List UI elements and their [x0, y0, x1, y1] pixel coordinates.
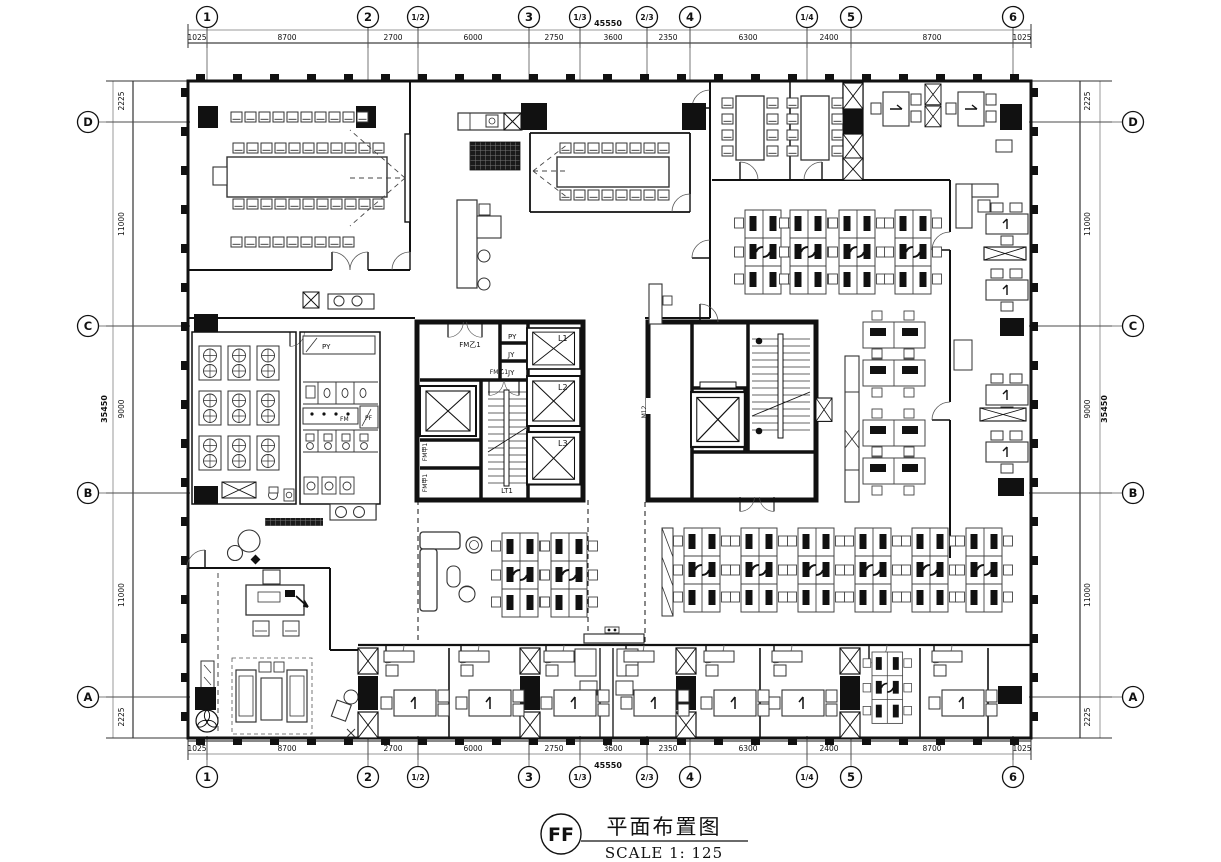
grid-dimensions-left: 2225 11000 9000 11000 2225 35450 — [100, 81, 190, 738]
dim-top: 2750 — [544, 33, 563, 42]
drawing-scale: SCALE 1: 125 — [605, 844, 723, 862]
grid-bubble-label: 1/4 — [800, 773, 813, 782]
dim-bottom: 1025 — [187, 744, 206, 753]
grid-bubble-label: 1/2 — [411, 773, 424, 782]
dim-bottom: 2750 — [544, 744, 563, 753]
grid-bubble-label: A — [1129, 690, 1138, 704]
label-wc-py: PY — [322, 343, 331, 351]
grid-bubble-label: D — [1128, 115, 1138, 129]
projection-screen — [405, 134, 410, 222]
label-shaft: PY — [508, 333, 517, 341]
grid-bubble-label: C — [1129, 319, 1137, 333]
grid-bubble-label: C — [84, 319, 92, 333]
dim-bottom: 1025 — [1012, 744, 1031, 753]
grid-bubble-label: A — [84, 690, 93, 704]
dim-right: 2225 — [1083, 707, 1092, 726]
detail-tag-label: FF — [548, 824, 574, 846]
mat-hatch — [470, 142, 520, 170]
dim-top: 2350 — [658, 33, 677, 42]
mullion-strips — [358, 648, 1022, 738]
grid-bubble-label: 4 — [686, 770, 694, 784]
hydrant-cabinet — [649, 284, 662, 324]
grid-bubble-label: 6 — [1009, 770, 1017, 784]
meeting-table — [736, 96, 764, 160]
label-wc-fm: FM — [340, 416, 349, 423]
dim-bottom: 3600 — [603, 744, 622, 753]
dim-top: 1025 — [187, 33, 206, 42]
grid-bubble-label: B — [1129, 486, 1138, 500]
dim-total-bottom: 45550 — [594, 761, 622, 770]
grid-bubble-label: 2/3 — [640, 773, 653, 782]
cabinet-strip — [845, 356, 859, 502]
open-office-bottom — [662, 528, 1013, 616]
dim-left: 11000 — [117, 583, 126, 607]
grid-bubble-label: 4 — [686, 10, 694, 24]
title-block: FF 平面布置图 SCALE 1: 125 — [541, 814, 748, 862]
dim-right: 11000 — [1083, 212, 1092, 236]
dim-total-top: 45550 — [594, 19, 622, 28]
conference-table — [227, 157, 387, 197]
grid-bubble-label: 6 — [1009, 10, 1017, 24]
label-fire-door: FM乙1 — [459, 341, 481, 349]
label-fire-door: FM乙1 — [490, 369, 509, 376]
drawing-title: 平面布置图 — [607, 815, 722, 839]
label-lift: L3 — [558, 439, 568, 448]
dim-left: 2225 — [117, 707, 126, 726]
grid-bubble-label: 1 — [203, 770, 211, 784]
dim-top: 2400 — [819, 33, 838, 42]
dim-top: 8700 — [922, 33, 941, 42]
meeting-table — [801, 96, 829, 160]
dim-top: 2700 — [383, 33, 402, 42]
grid-bubble-label: D — [83, 115, 93, 129]
bottom-office-row — [358, 648, 1022, 738]
dim-top: 6300 — [738, 33, 757, 42]
column — [198, 106, 218, 128]
dim-left: 11000 — [117, 212, 126, 236]
restrooms: PY FM PF — [269, 292, 381, 504]
stair-lt1 — [488, 390, 526, 486]
right-office-column — [954, 184, 1028, 496]
column — [998, 478, 1024, 496]
dim-bottom: 2700 — [383, 744, 402, 753]
exhaust-fan-icon — [196, 710, 218, 732]
label-lift: L1 — [558, 334, 568, 343]
column — [1000, 104, 1022, 130]
column — [195, 687, 216, 710]
grid-bubble-label: 1 — [203, 10, 211, 24]
grid-bubble-label: 2 — [364, 770, 372, 784]
grid-bubble-label: 1/4 — [800, 13, 813, 22]
column — [194, 314, 218, 332]
grid-bubble-label: 3 — [525, 10, 533, 24]
label-shaft: JY — [507, 351, 515, 359]
grid-bubble-label: 1/2 — [411, 13, 424, 22]
label-wc-pf: PF — [365, 415, 373, 422]
column — [682, 103, 706, 130]
dim-bottom: 2350 — [658, 744, 677, 753]
label-stair: LT1 — [501, 487, 513, 495]
grid-dimensions-right: 2225 11000 9000 11000 2225 35450 — [1029, 81, 1112, 738]
drawing-sheet: 1025 8700 2700 6000 2750 3600 2350 6300 … — [0, 0, 1221, 862]
grid-bubble-label: B — [84, 486, 93, 500]
column — [521, 103, 547, 130]
column — [194, 486, 218, 504]
dim-bottom: 6000 — [463, 744, 482, 753]
sofa-set — [232, 658, 312, 734]
mid-right-workstations — [845, 311, 925, 502]
grid-bubble-label: 5 — [847, 10, 855, 24]
executive-suite — [195, 504, 376, 737]
grid-bubble-label: 1/3 — [573, 13, 586, 22]
label-fire-door: FM甲1 — [422, 474, 429, 493]
dim-bottom: 8700 — [922, 744, 941, 753]
dim-left: 9000 — [117, 399, 126, 418]
conference-room-large — [198, 106, 410, 247]
dim-right: 2225 — [1083, 91, 1092, 110]
dining-area — [194, 314, 279, 504]
executive-desk — [246, 570, 308, 636]
meeting-table — [557, 157, 669, 187]
label-shaft: JY — [507, 369, 515, 377]
dim-top: 3600 — [603, 33, 622, 42]
grid-bubble-label: 5 — [847, 770, 855, 784]
dim-bottom: 6300 — [738, 744, 757, 753]
dim-top: 8700 — [277, 33, 296, 42]
dim-top: 6000 — [463, 33, 482, 42]
grid-bubble-label: 2/3 — [640, 13, 653, 22]
dim-total-left: 35450 — [100, 395, 109, 423]
dim-top: 1025 — [1012, 33, 1031, 42]
grid-bubble-label: 3 — [525, 770, 533, 784]
dim-right: 9000 — [1083, 399, 1092, 418]
column — [1000, 318, 1024, 336]
core-left: FM乙1 FM乙1 PY JY JY L1 L2 L3 LT1 FM甲1 FM甲… — [417, 322, 583, 500]
grid-dimensions-top: 1025 8700 2700 6000 2750 3600 2350 6300 … — [187, 19, 1031, 48]
lounge-area — [420, 532, 598, 617]
dim-bottom: 8700 — [277, 744, 296, 753]
stair-right — [752, 334, 810, 438]
dim-right: 11000 — [1083, 583, 1092, 607]
grid-bubble-label: 2 — [364, 10, 372, 24]
floor-plan-drawing: 1025 8700 2700 6000 2750 3600 2350 6300 … — [0, 0, 1221, 862]
dim-total-right: 35450 — [1100, 395, 1109, 423]
reception-desk — [457, 200, 501, 290]
dim-left: 2225 — [117, 91, 126, 110]
label-lift: L2 — [558, 383, 568, 392]
grid-bubble-label: 1/3 — [573, 773, 586, 782]
label-fire-door: FM甲1 — [422, 443, 429, 462]
label-door-m12: M12 — [641, 405, 648, 418]
pantry-and-meeting — [457, 103, 706, 290]
dim-bottom: 2400 — [819, 744, 838, 753]
